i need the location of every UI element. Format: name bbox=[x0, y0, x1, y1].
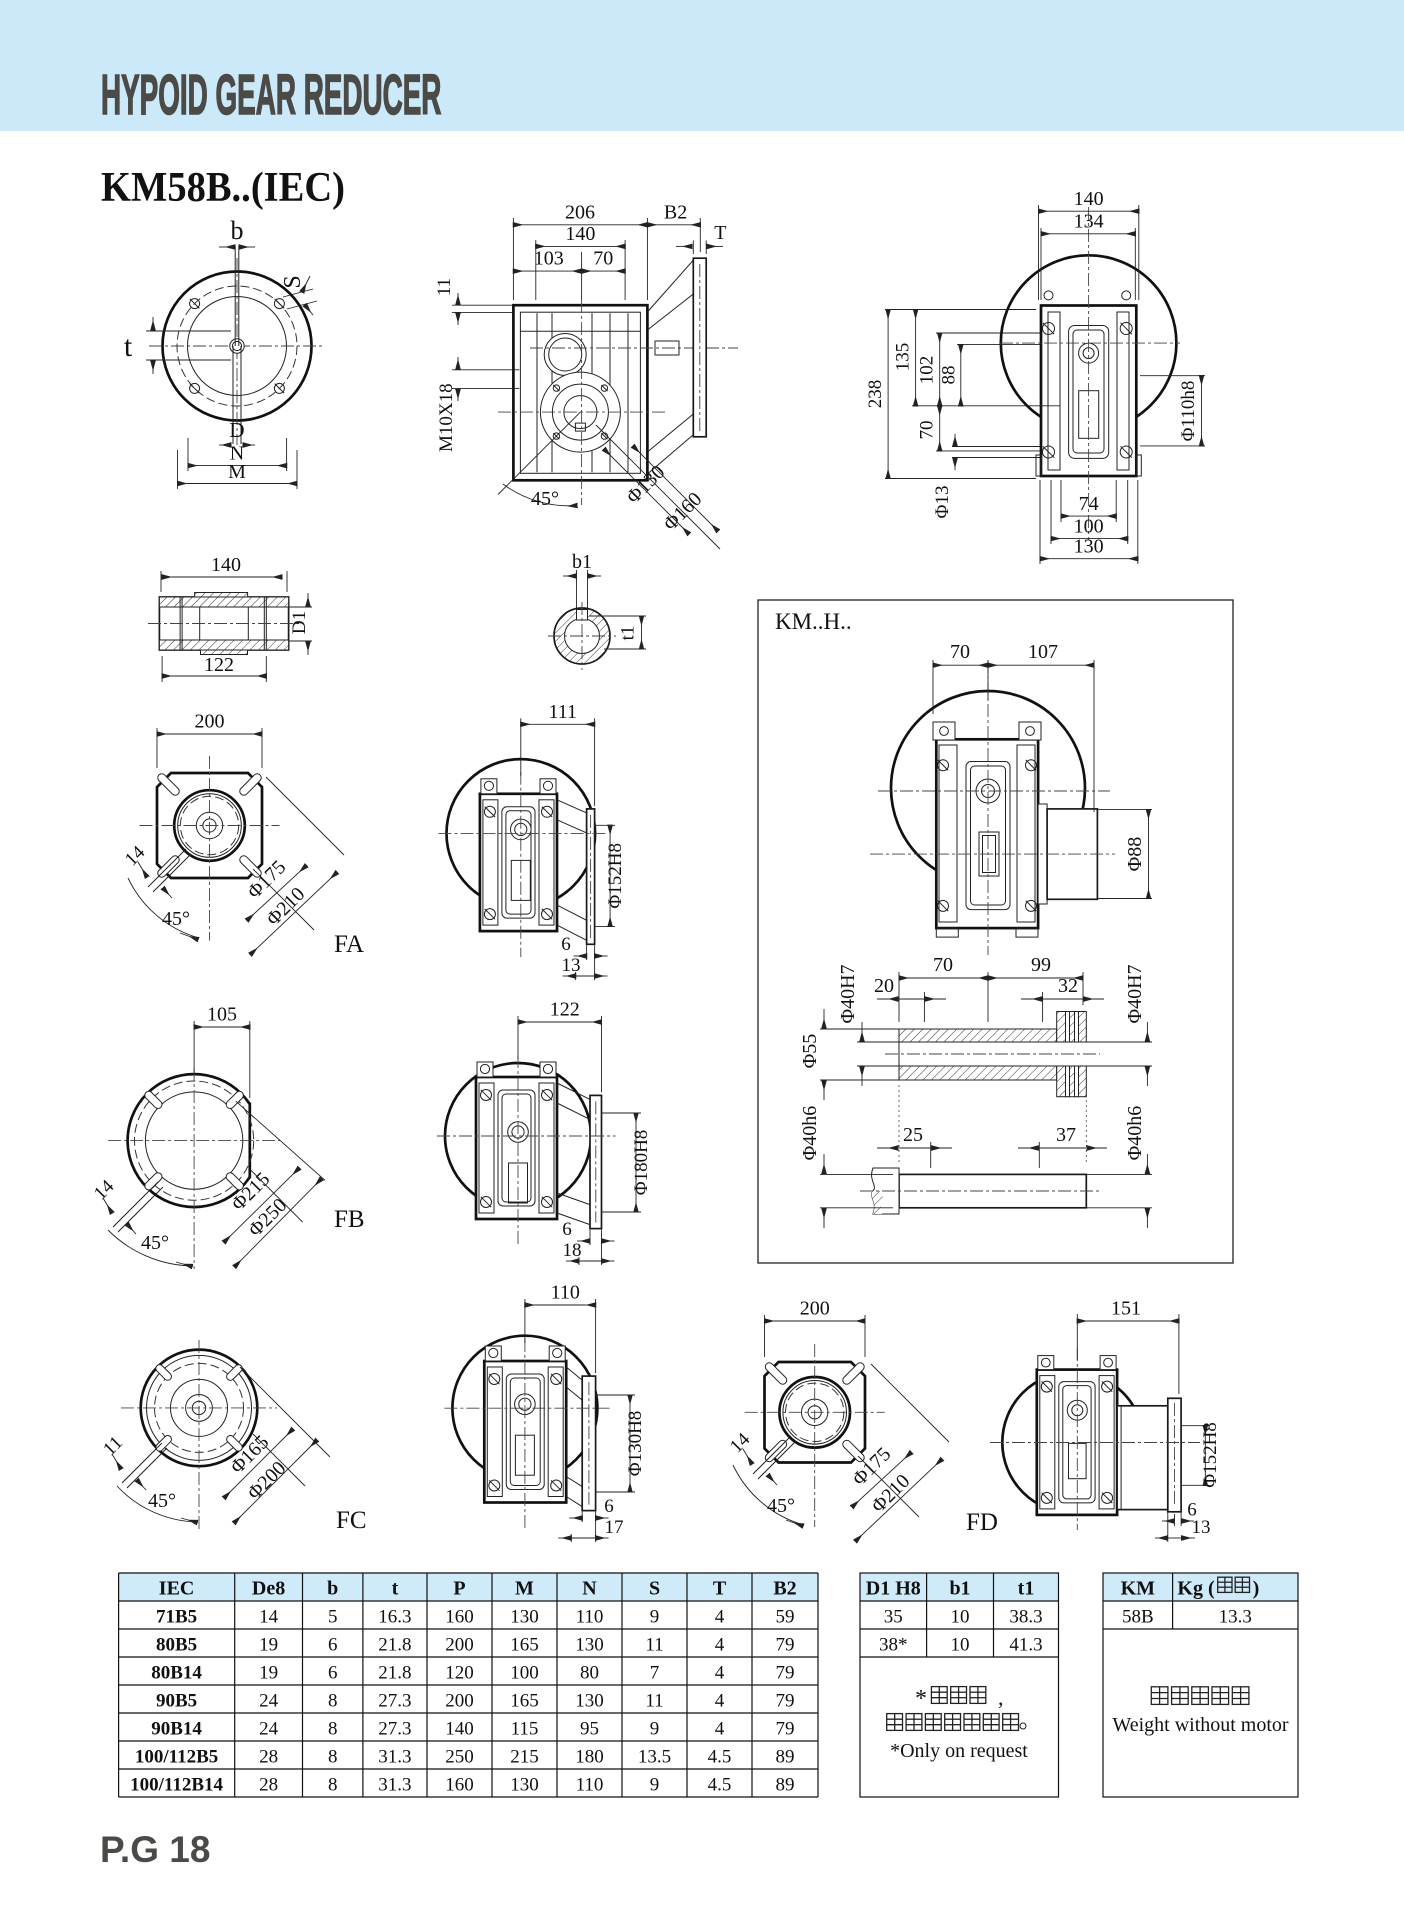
svg-text:100/112B5: 100/112B5 bbox=[135, 1747, 218, 1768]
svg-text:110: 110 bbox=[576, 1607, 604, 1628]
svg-text:140: 140 bbox=[1074, 188, 1104, 210]
svg-text:250: 250 bbox=[445, 1747, 474, 1768]
svg-text:Φ110h8: Φ110h8 bbox=[1178, 381, 1199, 442]
svg-text:103: 103 bbox=[534, 248, 564, 270]
svg-text:S: S bbox=[280, 275, 306, 288]
svg-text:4: 4 bbox=[715, 1691, 725, 1712]
svg-text:100: 100 bbox=[1074, 516, 1104, 538]
svg-text:14: 14 bbox=[121, 842, 150, 871]
svg-text:19: 19 bbox=[259, 1663, 278, 1684]
svg-text:5: 5 bbox=[328, 1607, 338, 1628]
svg-text:58B: 58B bbox=[1122, 1607, 1154, 1628]
svg-text:122: 122 bbox=[550, 999, 580, 1021]
svg-text:180: 180 bbox=[575, 1747, 604, 1768]
svg-text:KM58B..(IEC): KM58B..(IEC) bbox=[101, 165, 345, 211]
svg-text:De8: De8 bbox=[252, 1578, 285, 1600]
svg-text:200: 200 bbox=[195, 711, 225, 733]
svg-text:11: 11 bbox=[99, 1432, 127, 1460]
svg-text:89: 89 bbox=[776, 1747, 795, 1768]
svg-text:FC: FC bbox=[336, 1507, 367, 1534]
svg-text:): ) bbox=[1253, 1578, 1260, 1600]
svg-text:21.8: 21.8 bbox=[378, 1663, 411, 1684]
svg-text:20: 20 bbox=[874, 975, 894, 997]
svg-text:200: 200 bbox=[800, 1298, 830, 1320]
svg-text:21.8: 21.8 bbox=[378, 1635, 411, 1656]
svg-text:14: 14 bbox=[259, 1607, 279, 1628]
svg-text:88: 88 bbox=[939, 366, 960, 385]
svg-text:134: 134 bbox=[1074, 211, 1104, 233]
svg-text:79: 79 bbox=[776, 1691, 795, 1712]
svg-text:9: 9 bbox=[650, 1775, 660, 1796]
svg-text:45°: 45° bbox=[767, 1495, 795, 1517]
svg-text:8: 8 bbox=[328, 1775, 338, 1796]
svg-text:6: 6 bbox=[562, 1219, 572, 1240]
svg-text:74: 74 bbox=[1079, 493, 1099, 515]
svg-text:D1 H8: D1 H8 bbox=[866, 1578, 921, 1600]
svg-text:38*: 38* bbox=[879, 1635, 908, 1656]
svg-text:Weight without motor: Weight without motor bbox=[1112, 1714, 1288, 1736]
svg-text:Φ88: Φ88 bbox=[1124, 837, 1146, 872]
svg-text:31.3: 31.3 bbox=[378, 1775, 411, 1796]
svg-text:11: 11 bbox=[645, 1635, 663, 1656]
svg-text:32: 32 bbox=[1058, 975, 1078, 997]
svg-text:Φ180H8: Φ180H8 bbox=[631, 1130, 652, 1196]
svg-text:18: 18 bbox=[563, 1240, 582, 1261]
svg-text:6: 6 bbox=[561, 934, 571, 955]
svg-text:70: 70 bbox=[950, 641, 970, 663]
svg-text:t: t bbox=[124, 330, 133, 363]
svg-text:S: S bbox=[649, 1578, 660, 1600]
svg-text:4: 4 bbox=[715, 1663, 725, 1684]
svg-text:8: 8 bbox=[328, 1691, 338, 1712]
svg-text:*Only on request: *Only on request bbox=[890, 1740, 1028, 1762]
svg-text:135: 135 bbox=[893, 343, 914, 372]
svg-text:27.3: 27.3 bbox=[378, 1719, 411, 1740]
svg-text:HYPOID GEAR REDUCER: HYPOID GEAR REDUCER bbox=[101, 63, 441, 127]
svg-text:160: 160 bbox=[445, 1607, 474, 1628]
svg-text:70: 70 bbox=[933, 954, 953, 976]
svg-text:107: 107 bbox=[1028, 641, 1058, 663]
svg-text:b: b bbox=[231, 216, 244, 245]
svg-text:160: 160 bbox=[445, 1775, 474, 1796]
svg-text:200: 200 bbox=[445, 1691, 474, 1712]
svg-text:130: 130 bbox=[575, 1691, 604, 1712]
svg-text:M: M bbox=[228, 461, 246, 483]
svg-text:206: 206 bbox=[565, 202, 595, 224]
svg-text:90B14: 90B14 bbox=[151, 1719, 202, 1740]
svg-text:130: 130 bbox=[510, 1775, 539, 1796]
svg-text:14: 14 bbox=[90, 1176, 119, 1205]
svg-text:4: 4 bbox=[715, 1719, 725, 1740]
svg-text:215: 215 bbox=[510, 1747, 539, 1768]
svg-text:140: 140 bbox=[565, 223, 595, 245]
svg-text:110: 110 bbox=[576, 1775, 604, 1796]
svg-text:D1: D1 bbox=[289, 611, 310, 634]
svg-text:165: 165 bbox=[510, 1635, 539, 1656]
svg-text:115: 115 bbox=[511, 1719, 539, 1740]
svg-text:80B5: 80B5 bbox=[156, 1635, 197, 1656]
svg-text:71B5: 71B5 bbox=[156, 1607, 197, 1628]
svg-text:Φ40H7: Φ40H7 bbox=[837, 964, 859, 1023]
svg-text:b: b bbox=[327, 1578, 338, 1600]
svg-text:M: M bbox=[515, 1578, 534, 1600]
svg-text:9: 9 bbox=[650, 1607, 660, 1628]
svg-text:b1: b1 bbox=[949, 1578, 970, 1600]
svg-text:165: 165 bbox=[510, 1691, 539, 1712]
svg-text:Φ40H7: Φ40H7 bbox=[1124, 964, 1146, 1023]
svg-text:238: 238 bbox=[865, 380, 886, 409]
svg-text:19: 19 bbox=[259, 1635, 278, 1656]
svg-text:M10X18: M10X18 bbox=[436, 383, 457, 452]
svg-text:,: , bbox=[998, 1685, 1004, 1710]
svg-text:Φ40h6: Φ40h6 bbox=[1124, 1106, 1146, 1161]
svg-text:17: 17 bbox=[605, 1517, 624, 1538]
svg-text:45°: 45° bbox=[162, 908, 190, 930]
svg-text:4: 4 bbox=[715, 1607, 725, 1628]
svg-text:31.3: 31.3 bbox=[378, 1747, 411, 1768]
svg-text:70: 70 bbox=[593, 248, 613, 270]
svg-text:70: 70 bbox=[917, 421, 938, 440]
svg-text:B2: B2 bbox=[773, 1578, 796, 1600]
svg-text:6: 6 bbox=[328, 1663, 338, 1684]
svg-text:24: 24 bbox=[259, 1691, 279, 1712]
svg-text:13.5: 13.5 bbox=[638, 1747, 671, 1768]
svg-text:130: 130 bbox=[510, 1607, 539, 1628]
svg-text:Φ55: Φ55 bbox=[799, 1034, 821, 1069]
svg-text:8: 8 bbox=[328, 1747, 338, 1768]
svg-text:130: 130 bbox=[1074, 536, 1104, 558]
svg-text:80: 80 bbox=[580, 1663, 599, 1684]
svg-text:28: 28 bbox=[259, 1747, 278, 1768]
svg-text:T: T bbox=[713, 1578, 727, 1600]
svg-text:D: D bbox=[229, 418, 244, 442]
svg-text:45°: 45° bbox=[148, 1490, 176, 1512]
svg-text:9: 9 bbox=[650, 1719, 660, 1740]
svg-text:Φ130H8: Φ130H8 bbox=[625, 1411, 646, 1477]
svg-text:140: 140 bbox=[445, 1719, 474, 1740]
svg-text:7: 7 bbox=[650, 1663, 660, 1684]
svg-text:80B14: 80B14 bbox=[151, 1663, 202, 1684]
svg-text:45°: 45° bbox=[531, 488, 559, 510]
svg-text:t1: t1 bbox=[618, 626, 639, 641]
svg-text:24: 24 bbox=[259, 1719, 279, 1740]
svg-text:27.3: 27.3 bbox=[378, 1691, 411, 1712]
svg-text:111: 111 bbox=[548, 701, 577, 723]
svg-text:*: * bbox=[915, 1686, 927, 1712]
svg-text:Kg (: Kg ( bbox=[1177, 1578, 1215, 1600]
svg-text:FA: FA bbox=[334, 931, 364, 958]
svg-text:151: 151 bbox=[1111, 1298, 1141, 1320]
svg-text:90B5: 90B5 bbox=[156, 1691, 197, 1712]
svg-text:25: 25 bbox=[903, 1124, 923, 1146]
svg-text:IEC: IEC bbox=[159, 1578, 195, 1600]
svg-text:Φ13: Φ13 bbox=[932, 486, 953, 519]
svg-text:38.3: 38.3 bbox=[1009, 1607, 1042, 1628]
svg-text:11: 11 bbox=[645, 1691, 663, 1712]
svg-text:Φ40h6: Φ40h6 bbox=[799, 1106, 821, 1161]
svg-text:140: 140 bbox=[211, 554, 241, 576]
svg-text:10: 10 bbox=[951, 1635, 970, 1656]
svg-text:13: 13 bbox=[562, 955, 581, 976]
svg-text:Φ152H8: Φ152H8 bbox=[1200, 1422, 1221, 1488]
svg-text:FD: FD bbox=[966, 1509, 998, 1536]
svg-text:b1: b1 bbox=[572, 551, 592, 573]
svg-text:45°: 45° bbox=[141, 1232, 169, 1254]
svg-text:41.3: 41.3 bbox=[1009, 1635, 1042, 1656]
svg-text:79: 79 bbox=[776, 1635, 795, 1656]
svg-text:37: 37 bbox=[1056, 1124, 1076, 1146]
svg-text:N: N bbox=[582, 1578, 597, 1600]
svg-text:79: 79 bbox=[776, 1719, 795, 1740]
svg-text:13: 13 bbox=[1192, 1517, 1211, 1538]
svg-text:4.5: 4.5 bbox=[708, 1775, 732, 1796]
svg-text:130: 130 bbox=[575, 1635, 604, 1656]
svg-text:FB: FB bbox=[334, 1206, 365, 1233]
svg-text:95: 95 bbox=[580, 1719, 599, 1740]
svg-text:P.G 18: P.G 18 bbox=[100, 1829, 210, 1870]
svg-text:8: 8 bbox=[328, 1719, 338, 1740]
svg-text:4: 4 bbox=[715, 1635, 725, 1656]
svg-text:4.5: 4.5 bbox=[708, 1747, 732, 1768]
svg-text:120: 120 bbox=[445, 1663, 474, 1684]
svg-text:P: P bbox=[453, 1578, 465, 1600]
svg-text:79: 79 bbox=[776, 1663, 795, 1684]
svg-text:59: 59 bbox=[776, 1607, 795, 1628]
svg-text:16.3: 16.3 bbox=[378, 1607, 411, 1628]
svg-text:89: 89 bbox=[776, 1775, 795, 1796]
svg-text:t: t bbox=[392, 1578, 399, 1600]
svg-text:100: 100 bbox=[510, 1663, 539, 1684]
svg-text:t1: t1 bbox=[1018, 1578, 1035, 1600]
svg-text:28: 28 bbox=[259, 1775, 278, 1796]
svg-text:Φ152H8: Φ152H8 bbox=[605, 843, 626, 909]
svg-text:122: 122 bbox=[204, 654, 234, 676]
svg-text:6: 6 bbox=[328, 1635, 338, 1656]
svg-text:B2: B2 bbox=[664, 202, 687, 224]
svg-text:11: 11 bbox=[434, 278, 455, 296]
svg-text:35: 35 bbox=[884, 1607, 903, 1628]
svg-text:102: 102 bbox=[917, 356, 938, 385]
svg-text:13.3: 13.3 bbox=[1219, 1607, 1252, 1628]
svg-text:100/112B14: 100/112B14 bbox=[130, 1775, 223, 1796]
svg-text:KM..H..: KM..H.. bbox=[775, 609, 852, 634]
svg-text:KM: KM bbox=[1121, 1578, 1156, 1600]
svg-text:10: 10 bbox=[951, 1607, 970, 1628]
svg-text:105: 105 bbox=[207, 1004, 237, 1026]
svg-text:T: T bbox=[714, 222, 726, 244]
svg-text:110: 110 bbox=[551, 1282, 580, 1304]
svg-text:6: 6 bbox=[604, 1496, 614, 1517]
svg-text:99: 99 bbox=[1031, 954, 1051, 976]
svg-text:200: 200 bbox=[445, 1635, 474, 1656]
svg-text:14: 14 bbox=[726, 1429, 755, 1458]
